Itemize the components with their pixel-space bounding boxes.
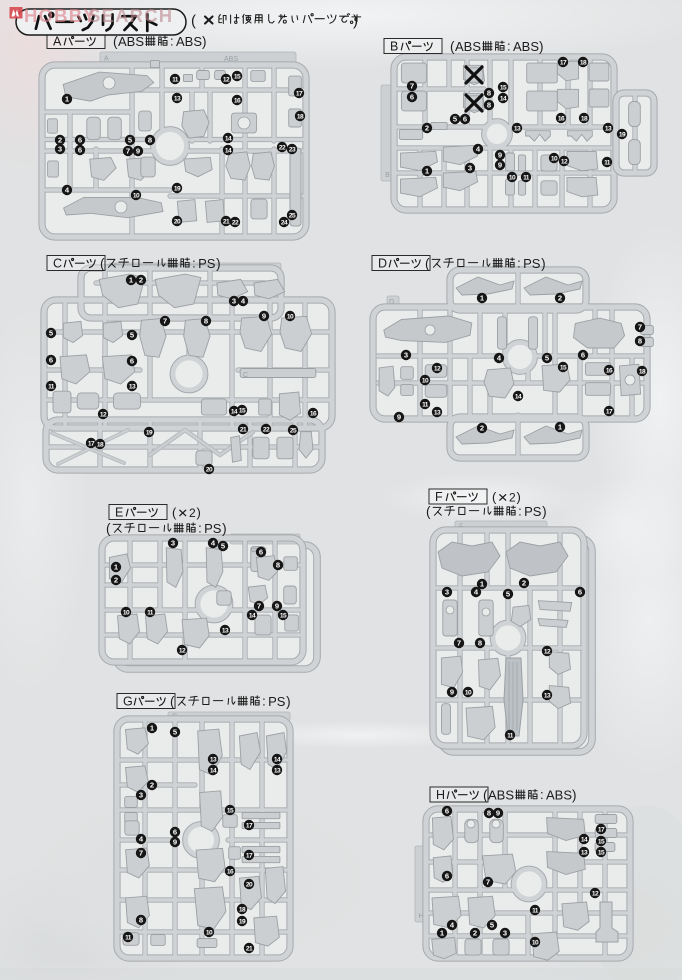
svg-text::: : <box>192 256 196 271</box>
svg-text:21: 21 <box>223 219 230 226</box>
svg-text:9: 9 <box>498 151 502 160</box>
svg-text:22: 22 <box>263 427 270 434</box>
svg-text:ABS: ABS <box>546 788 572 803</box>
svg-text:(: ( <box>492 490 497 505</box>
svg-text:10: 10 <box>133 193 140 200</box>
svg-text:14: 14 <box>210 768 217 775</box>
svg-text:): ) <box>539 39 544 54</box>
svg-text:15: 15 <box>598 850 605 857</box>
svg-text:3: 3 <box>58 145 62 154</box>
svg-text:12: 12 <box>592 891 599 898</box>
svg-text:3: 3 <box>232 297 236 306</box>
svg-text:8: 8 <box>204 317 208 326</box>
svg-text:(: ( <box>100 256 105 271</box>
svg-text:2: 2 <box>114 576 118 585</box>
svg-text:13: 13 <box>174 96 181 103</box>
svg-text:ABS: ABS <box>513 39 539 54</box>
svg-text:(: ( <box>172 505 177 520</box>
svg-text:8: 8 <box>638 337 642 346</box>
svg-text:19: 19 <box>619 132 626 139</box>
svg-text:6: 6 <box>410 93 414 102</box>
svg-text:2: 2 <box>480 424 484 433</box>
svg-text:ABS: ABS <box>488 788 514 803</box>
svg-text:7: 7 <box>410 82 414 91</box>
svg-text:2: 2 <box>522 579 526 588</box>
svg-text:9: 9 <box>498 161 502 170</box>
svg-text:24: 24 <box>281 220 288 227</box>
svg-text:2: 2 <box>150 781 154 790</box>
svg-text:21: 21 <box>246 946 253 953</box>
svg-text:3: 3 <box>445 588 449 597</box>
svg-text:6: 6 <box>130 357 134 366</box>
svg-text:2: 2 <box>558 294 562 303</box>
svg-text:19: 19 <box>174 186 181 193</box>
svg-text:2: 2 <box>473 929 477 938</box>
svg-text:7: 7 <box>457 639 461 648</box>
svg-text:6: 6 <box>578 588 582 597</box>
svg-text:11: 11 <box>172 77 179 84</box>
svg-text:8: 8 <box>487 809 491 818</box>
svg-text:13: 13 <box>274 768 281 775</box>
svg-text:10: 10 <box>123 610 130 617</box>
svg-text:8: 8 <box>478 639 482 648</box>
svg-text:14: 14 <box>249 613 256 620</box>
svg-text:6: 6 <box>49 356 53 365</box>
svg-text:11: 11 <box>147 610 154 617</box>
svg-text:PS: PS <box>204 521 222 536</box>
svg-text:14: 14 <box>225 148 232 155</box>
svg-text:G: G <box>123 695 133 709</box>
svg-text:H: H <box>436 788 445 802</box>
svg-text:15: 15 <box>234 74 241 81</box>
svg-text:19: 19 <box>146 430 153 437</box>
svg-text:10: 10 <box>287 314 294 321</box>
svg-text:18: 18 <box>297 114 304 121</box>
svg-text:F: F <box>435 490 443 504</box>
svg-text:17: 17 <box>246 823 253 830</box>
svg-text:12: 12 <box>561 159 568 166</box>
svg-text:17: 17 <box>246 853 253 860</box>
svg-text:SEARCH: SEARCH <box>88 5 173 26</box>
svg-text:10: 10 <box>206 930 213 937</box>
svg-text:16: 16 <box>558 116 565 123</box>
svg-text:3: 3 <box>171 539 175 548</box>
svg-text:(: ( <box>426 504 431 519</box>
svg-text:14: 14 <box>500 96 507 103</box>
svg-text:13: 13 <box>434 410 441 417</box>
svg-text:): ) <box>286 694 291 709</box>
svg-text:15: 15 <box>598 839 605 846</box>
svg-text:12: 12 <box>434 366 441 373</box>
svg-text:16: 16 <box>227 869 234 876</box>
svg-text:C: C <box>53 257 62 271</box>
svg-text:13: 13 <box>581 850 588 857</box>
svg-text:9: 9 <box>173 838 177 847</box>
svg-text:8: 8 <box>487 89 491 98</box>
svg-text:D: D <box>378 257 387 271</box>
svg-text:ABS: ABS <box>455 39 481 54</box>
svg-text:): ) <box>353 13 358 30</box>
svg-text:C: C <box>243 372 248 379</box>
svg-text:14: 14 <box>581 837 588 844</box>
svg-text:6: 6 <box>581 351 585 360</box>
svg-text:18: 18 <box>239 907 246 914</box>
svg-text:PS: PS <box>268 694 286 709</box>
svg-text:18: 18 <box>639 369 646 376</box>
svg-text:10: 10 <box>551 156 558 163</box>
svg-text:17: 17 <box>598 827 605 834</box>
svg-text:13: 13 <box>514 126 521 133</box>
svg-text:12: 12 <box>544 649 551 656</box>
svg-text:17: 17 <box>296 91 303 98</box>
svg-text::: : <box>540 787 544 802</box>
svg-text:6: 6 <box>78 146 82 155</box>
svg-text:16: 16 <box>310 411 317 418</box>
svg-text:): ) <box>572 788 577 803</box>
svg-text:11: 11 <box>532 908 539 915</box>
svg-text:2: 2 <box>58 136 62 145</box>
svg-text:2: 2 <box>509 491 516 505</box>
svg-text:3: 3 <box>468 164 472 173</box>
svg-text:10: 10 <box>509 175 516 182</box>
svg-text:12: 12 <box>100 412 107 419</box>
svg-text:(: ( <box>106 521 111 536</box>
svg-text:21: 21 <box>240 427 247 434</box>
svg-text:11: 11 <box>523 175 530 182</box>
svg-text:14: 14 <box>515 394 522 401</box>
svg-text:2: 2 <box>189 506 196 520</box>
svg-text:25: 25 <box>290 428 297 435</box>
svg-text:B: B <box>385 172 390 179</box>
svg-text:3: 3 <box>503 929 507 938</box>
svg-text:8: 8 <box>139 916 143 925</box>
svg-text:7: 7 <box>486 878 490 887</box>
svg-text:8: 8 <box>148 136 152 145</box>
svg-text:7: 7 <box>638 323 642 332</box>
svg-text:8: 8 <box>487 101 491 110</box>
svg-text:18: 18 <box>580 60 587 67</box>
svg-text:10: 10 <box>532 940 539 947</box>
svg-text:10: 10 <box>465 690 472 697</box>
svg-text:6: 6 <box>78 136 82 145</box>
svg-text:7: 7 <box>257 602 261 611</box>
svg-text:9: 9 <box>275 602 279 611</box>
svg-text:13: 13 <box>544 693 551 700</box>
svg-text:11: 11 <box>604 160 611 167</box>
svg-text:18: 18 <box>581 116 588 123</box>
svg-text:14: 14 <box>274 757 281 764</box>
svg-text:15: 15 <box>500 85 507 92</box>
svg-text:(: ( <box>425 256 430 271</box>
svg-text:): ) <box>517 490 521 505</box>
svg-text:15: 15 <box>280 613 287 620</box>
svg-text:): ) <box>197 505 201 520</box>
svg-text:(: ( <box>191 13 196 30</box>
svg-text:13: 13 <box>129 384 136 391</box>
svg-text:): ) <box>222 521 227 536</box>
svg-text:16: 16 <box>234 98 241 105</box>
svg-text::: : <box>518 504 522 519</box>
svg-text:): ) <box>216 256 221 271</box>
svg-text:15: 15 <box>239 408 246 415</box>
svg-text:A: A <box>53 35 62 49</box>
svg-text:PS: PS <box>523 256 541 271</box>
svg-text:12: 12 <box>223 77 230 84</box>
svg-text:ABS: ABS <box>118 34 144 49</box>
svg-text:20: 20 <box>246 882 253 889</box>
svg-text:9: 9 <box>397 413 401 422</box>
svg-text:6: 6 <box>259 548 263 557</box>
svg-text:11: 11 <box>125 935 132 942</box>
svg-text:13: 13 <box>210 757 217 764</box>
svg-text:10: 10 <box>422 378 429 385</box>
svg-text:20: 20 <box>174 219 181 226</box>
svg-text::: : <box>507 39 511 54</box>
svg-text:7: 7 <box>139 849 143 858</box>
svg-text:13: 13 <box>605 126 612 133</box>
svg-text:PS: PS <box>524 504 542 519</box>
svg-text:ABS: ABS <box>176 34 202 49</box>
svg-text:15: 15 <box>560 365 567 372</box>
svg-text:B: B <box>390 40 398 54</box>
svg-text:9: 9 <box>262 312 266 321</box>
svg-text:20: 20 <box>206 467 213 474</box>
svg-text::: : <box>517 256 521 271</box>
svg-text:7: 7 <box>163 317 167 326</box>
svg-text:2: 2 <box>139 276 143 285</box>
svg-text:3: 3 <box>139 791 143 800</box>
svg-text:17: 17 <box>560 60 567 67</box>
svg-text:3: 3 <box>404 351 408 360</box>
svg-text:13: 13 <box>222 628 229 635</box>
svg-text:(: ( <box>170 694 175 709</box>
svg-text:9: 9 <box>450 688 454 697</box>
svg-text:22: 22 <box>279 145 286 152</box>
svg-text::: : <box>198 521 202 536</box>
svg-text::: : <box>262 694 266 709</box>
svg-text:9: 9 <box>496 809 500 818</box>
svg-text:14: 14 <box>225 136 232 143</box>
svg-text:E: E <box>115 506 123 520</box>
svg-text:): ) <box>202 34 207 49</box>
svg-text:): ) <box>541 256 546 271</box>
svg-text:6: 6 <box>445 807 449 816</box>
svg-text:11: 11 <box>48 384 55 391</box>
svg-text:7: 7 <box>126 147 130 156</box>
svg-text:15: 15 <box>227 808 234 815</box>
svg-text:11: 11 <box>507 733 514 740</box>
svg-text:PS: PS <box>198 256 216 271</box>
svg-text:): ) <box>542 504 547 519</box>
svg-text:22: 22 <box>232 220 239 227</box>
svg-text:17: 17 <box>606 409 613 416</box>
svg-text:6: 6 <box>173 828 177 837</box>
svg-text:9: 9 <box>136 147 140 156</box>
svg-text:6: 6 <box>445 872 449 881</box>
svg-text:HOBBY: HOBBY <box>24 5 97 26</box>
svg-text:17: 17 <box>88 441 95 448</box>
svg-text:23: 23 <box>289 147 296 154</box>
svg-text:18: 18 <box>97 442 104 449</box>
svg-text:6: 6 <box>463 115 467 124</box>
svg-text:8: 8 <box>276 561 280 570</box>
svg-text:11: 11 <box>422 402 429 409</box>
svg-text:2: 2 <box>425 124 429 133</box>
svg-text:12: 12 <box>179 648 186 655</box>
svg-text:25: 25 <box>289 213 296 220</box>
svg-text:16: 16 <box>606 368 613 375</box>
svg-text:19: 19 <box>239 919 246 926</box>
